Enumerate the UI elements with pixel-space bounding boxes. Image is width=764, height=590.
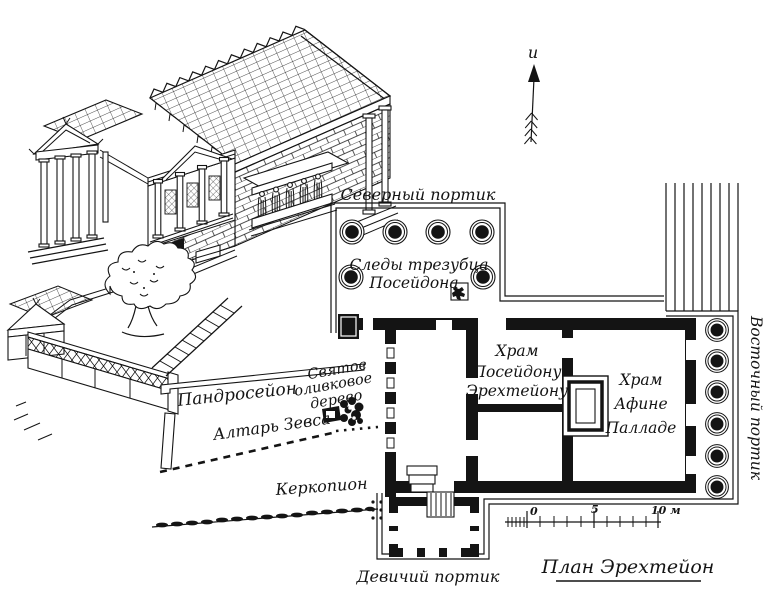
scale-bar: 0 5 10 м — [505, 503, 681, 528]
interior-stairs — [407, 466, 437, 492]
ground-hatching — [14, 402, 52, 440]
figure-canvas: и — [0, 0, 764, 590]
label-poseidon-3: Эрехтейону — [466, 382, 568, 400]
lattice-window — [165, 190, 176, 214]
porch-pier — [389, 531, 398, 544]
north-arrow: и — [524, 43, 540, 144]
pandroseion-courtyard — [8, 241, 242, 440]
porch-pier — [425, 547, 439, 557]
label-poseidon-1: Храм — [494, 342, 538, 360]
portico-column — [103, 152, 108, 222]
wall-opening — [466, 440, 478, 456]
north-arrow-letter: и — [528, 43, 538, 62]
erechtheion-figure: и — [0, 0, 764, 590]
label-trident-2: Посейдона — [368, 274, 458, 292]
wall-opening — [562, 338, 573, 358]
wall-opening — [363, 318, 373, 330]
plan-column — [706, 413, 729, 436]
porch-pier — [470, 531, 479, 544]
scale-label-5: 5 — [591, 503, 599, 516]
tree-trunk — [122, 306, 164, 337]
label-zeus-altar: Алтарь Зевса — [211, 409, 332, 444]
label-east-portico: Восточный портик — [747, 315, 764, 481]
plan-column — [706, 476, 729, 499]
portico-column — [71, 154, 81, 241]
label-trident-1: Следы трезубца — [349, 256, 488, 274]
label-poseidon-2: Посейдону — [471, 363, 561, 381]
scale-label-10m: 10 м — [651, 504, 681, 517]
label-north-portico: Северный портик — [341, 185, 496, 204]
plan-column — [706, 319, 729, 342]
plan-column — [706, 445, 729, 468]
plan-column — [706, 381, 729, 404]
plan-column — [383, 220, 407, 244]
plan-steps-east — [666, 183, 738, 311]
label-athena-3: Палладе — [605, 419, 677, 437]
label-athena-1: Храм — [618, 371, 662, 389]
courtyard-wall — [28, 332, 178, 414]
plan-column — [706, 350, 729, 373]
north-arrow-head — [528, 64, 540, 82]
plan-title: План Эрехтейон — [541, 556, 715, 578]
plan-column — [426, 220, 450, 244]
floor-plan: 0 5 10 м Северный портик Следы трезубца … — [152, 183, 764, 586]
plan-column — [340, 220, 364, 244]
label-kekropion: Керкопион — [274, 474, 368, 499]
lattice-window — [209, 176, 220, 200]
stairway — [152, 298, 242, 376]
scale-label-0: 0 — [530, 505, 538, 518]
wall-opening — [686, 404, 697, 426]
olive-tree-3d — [105, 241, 196, 336]
east-portico-plan — [706, 319, 729, 499]
portico-column — [55, 156, 65, 244]
plan-column — [470, 220, 494, 244]
wall-fragment — [161, 413, 175, 469]
porch-pier — [470, 513, 479, 526]
portico-column — [87, 151, 97, 238]
caryatid-porch-plan — [389, 492, 479, 557]
lattice-window — [187, 183, 198, 207]
portico-column — [39, 159, 49, 247]
wall-opening — [478, 318, 506, 330]
wall-opening — [436, 320, 452, 330]
niche-structure — [563, 376, 608, 436]
portico-steps — [28, 238, 108, 264]
porch-pier — [447, 547, 461, 557]
rocky-edge-line — [152, 507, 378, 528]
label-maiden-portico: Девичий портик — [356, 567, 500, 586]
north-portico-3d — [28, 100, 148, 264]
porch-pier — [389, 513, 398, 526]
porch-pier — [403, 547, 417, 557]
label-athena-2: Афине — [613, 395, 667, 413]
wall-opening — [686, 340, 697, 360]
wall-opening — [686, 456, 697, 474]
